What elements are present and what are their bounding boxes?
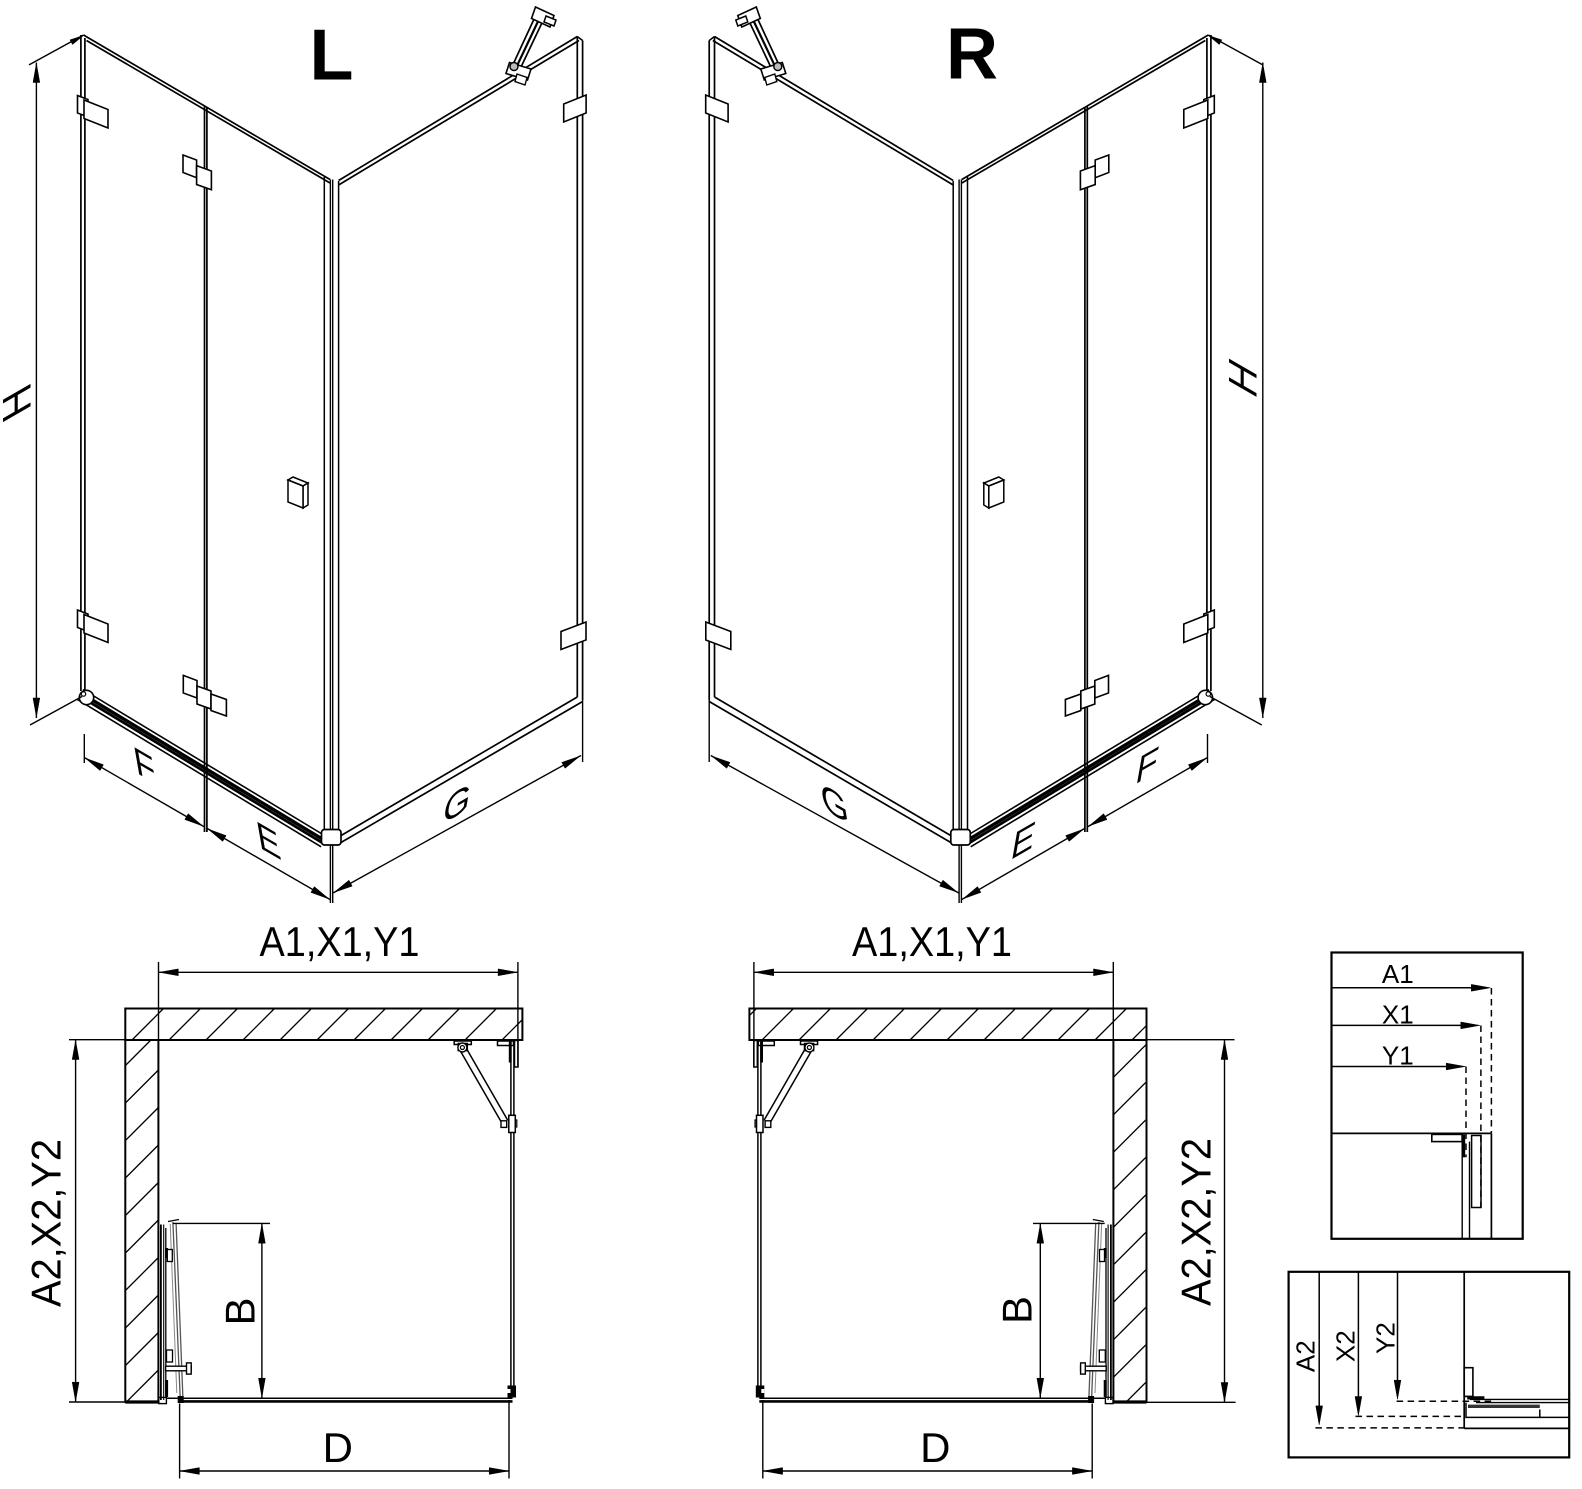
svg-text:A1,X1,Y1: A1,X1,Y1: [260, 918, 420, 965]
svg-text:A1: A1: [1382, 959, 1414, 989]
svg-text:Y1: Y1: [1382, 1040, 1414, 1070]
svg-text:Y2: Y2: [1371, 1322, 1401, 1354]
svg-text:D: D: [323, 1424, 353, 1471]
svg-text:R: R: [946, 15, 998, 95]
svg-text:A1,X1,Y1: A1,X1,Y1: [852, 918, 1012, 965]
svg-text:B: B: [217, 1297, 264, 1325]
svg-text:X2: X2: [1331, 1330, 1361, 1362]
svg-text:B: B: [994, 1296, 1041, 1324]
svg-text:A2: A2: [1290, 1340, 1320, 1372]
svg-text:A2,X2,Y2: A2,X2,Y2: [22, 1139, 69, 1307]
svg-text:D: D: [920, 1424, 950, 1471]
svg-text:A2,X2,Y2: A2,X2,Y2: [1173, 1138, 1220, 1306]
svg-text:X1: X1: [1382, 1000, 1414, 1030]
svg-text:L: L: [310, 16, 354, 96]
